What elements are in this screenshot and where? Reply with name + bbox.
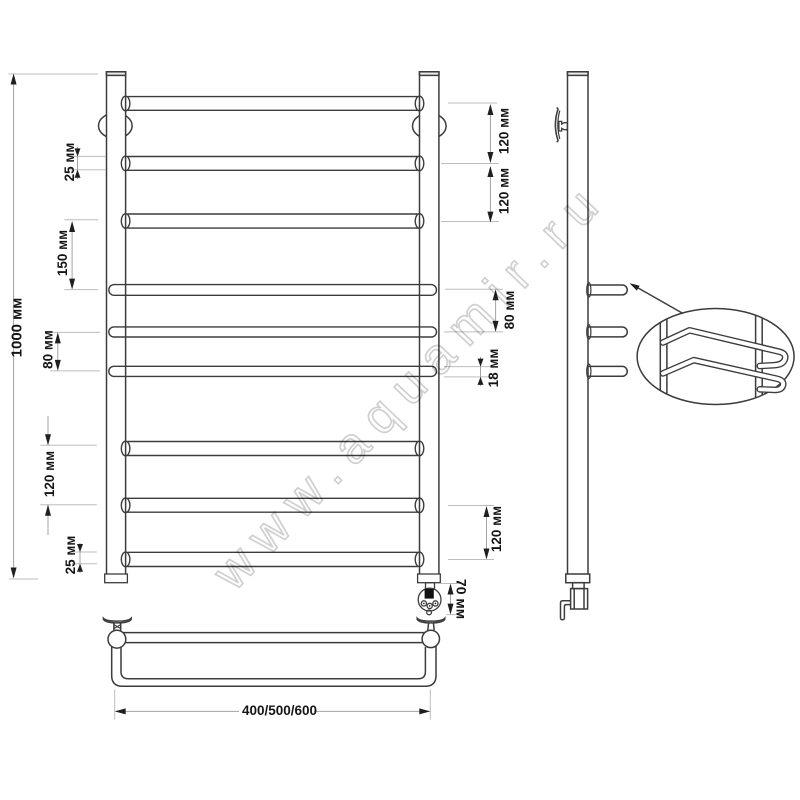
- svg-text:120 мм: 120 мм: [497, 108, 512, 154]
- svg-text:1000 мм: 1000 мм: [9, 298, 26, 358]
- svg-text:150 мм: 150 мм: [55, 230, 70, 276]
- svg-text:18 мм: 18 мм: [486, 349, 501, 388]
- svg-text:25 мм: 25 мм: [62, 143, 77, 182]
- svg-text:80 мм: 80 мм: [41, 330, 56, 369]
- svg-text:120 мм: 120 мм: [489, 506, 504, 552]
- svg-text:70 мм: 70 мм: [454, 579, 470, 619]
- svg-text:25 мм: 25 мм: [63, 536, 78, 575]
- svg-text:120 мм: 120 мм: [42, 451, 57, 497]
- svg-text:400/500/600: 400/500/600: [242, 703, 317, 718]
- svg-text:120 мм: 120 мм: [497, 168, 512, 214]
